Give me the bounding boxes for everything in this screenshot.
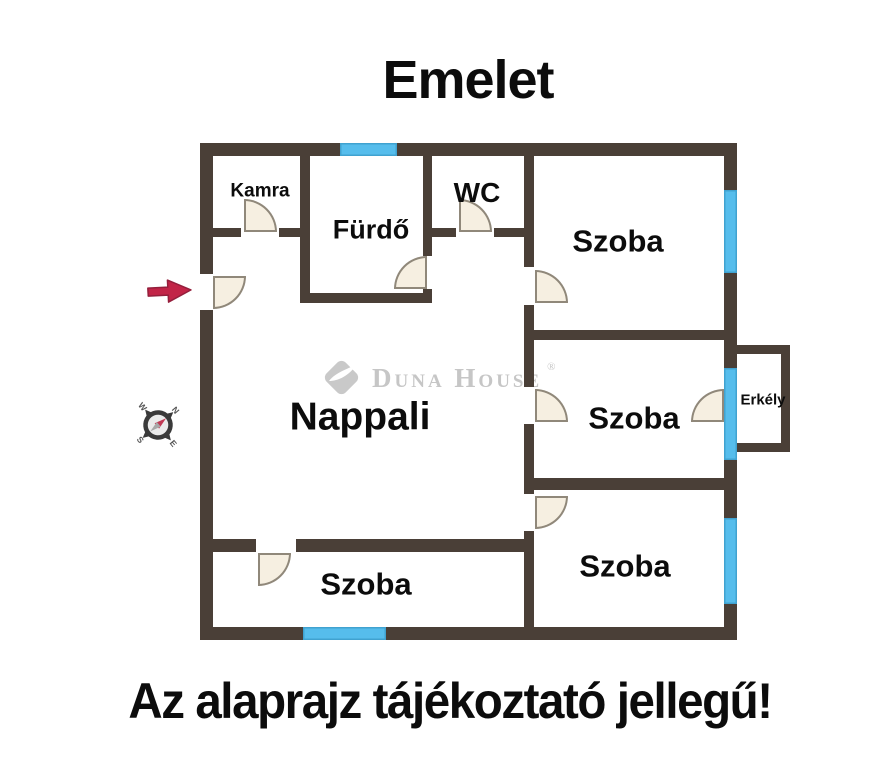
page-title: Emelet: [382, 53, 553, 107]
room-label-szoba-top: Szoba: [572, 226, 663, 257]
wall-outer-top: [200, 143, 737, 156]
wall-wc-bottom-right: [494, 228, 524, 237]
wall-balcony-bottom: [737, 443, 790, 452]
door-entrance: [213, 276, 246, 309]
door-szoba-top: [535, 270, 568, 303]
window-right-szoba-bottom: [724, 518, 737, 604]
wall-furdo-bottom: [300, 293, 432, 303]
wall-central-seg3: [524, 424, 534, 494]
door-kamra: [244, 199, 277, 232]
door-szoba-bottom-left: [258, 553, 291, 586]
wall-furdo-wc-lower: [423, 289, 432, 303]
room-label-wc: WC: [454, 179, 501, 207]
window-top: [340, 143, 397, 156]
window-right-szoba-top: [724, 190, 737, 273]
door-szoba-bottom-right: [535, 496, 568, 529]
room-label-szoba-bottom-left: Szoba: [320, 569, 411, 600]
window-bottom: [303, 627, 386, 640]
wall-szoba-middle-bottom: [534, 478, 724, 490]
room-label-nappali: Nappali: [290, 398, 431, 437]
wall-nappali-szoba-right: [296, 539, 524, 552]
wall-outer-left-upper: [200, 143, 213, 274]
registered-mark: ®: [547, 361, 555, 373]
wall-kamra-bottom-right: [279, 228, 300, 237]
brand-logo-icon: [321, 355, 363, 401]
door-balcony: [691, 389, 724, 422]
floor-plan-page: Emelet Duna House ®: [0, 0, 871, 768]
room-label-erkely: Erkély: [740, 393, 785, 408]
wall-furdo-wc-upper: [423, 156, 432, 256]
wall-central-seg4: [524, 531, 534, 627]
door-furdo: [394, 256, 427, 289]
room-label-kamra: Kamra: [230, 182, 289, 201]
wall-kamra-furdo: [300, 156, 310, 303]
disclaimer-text: Az alaprajz tájékoztató jellegű!: [128, 676, 771, 726]
wall-outer-left-lower: [200, 310, 213, 640]
window-balcony-glazing: [724, 368, 737, 460]
wall-nappali-szoba-left: [213, 539, 256, 552]
watermark: Duna House ®: [321, 355, 556, 401]
room-label-szoba-middle: Szoba: [588, 403, 679, 434]
wall-outer-bottom: [200, 627, 737, 640]
wall-kamra-bottom-left: [213, 228, 241, 237]
room-label-szoba-bottom-right: Szoba: [579, 551, 670, 582]
compass-letter-s: S: [135, 434, 147, 445]
wall-central-seg2: [524, 305, 534, 387]
watermark-brand-text: Duna House: [372, 365, 542, 392]
wall-central-seg1: [524, 156, 534, 267]
wall-wc-bottom-left: [432, 228, 456, 237]
door-szoba-middle: [535, 389, 568, 422]
compass-rose-icon: N E S W: [130, 397, 186, 453]
wall-szoba-top-bottom: [534, 330, 724, 340]
entrance-arrow-icon: [146, 276, 193, 306]
room-label-furdo: Fürdő: [333, 217, 409, 244]
